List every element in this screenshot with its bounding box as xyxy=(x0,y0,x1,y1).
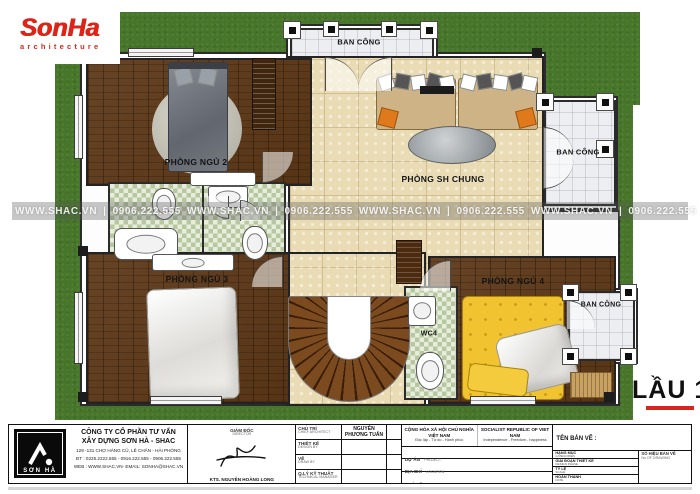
right-margin-panel xyxy=(633,105,693,420)
column-symbol xyxy=(620,348,637,365)
room-label-bedroom2: PHÒNG NGỦ 2 xyxy=(165,157,228,167)
wall-pier xyxy=(78,392,88,402)
staff-label-en: DESIGN BY xyxy=(298,446,339,450)
wc4-toilet-symbol xyxy=(416,352,444,390)
watermark-text: WWW.SHAC.VN|0906.222.555 xyxy=(12,206,184,217)
room-label-living: PHÒNG SH CHUNG xyxy=(401,174,484,184)
company-address: 129 -131 CHỢ HÀNG CŨ, LÊ CHÂN - HẢI PHÒN… xyxy=(71,447,186,454)
column-symbol xyxy=(323,21,339,37)
tv-cabinet-symbol xyxy=(420,86,454,94)
staff-row: Q.LÝ KỸ THUẬTTECHNICAL MANAGER xyxy=(296,470,401,483)
company-phone: ĐT : 0225.2222.555 - 0916.222.555 - 0906… xyxy=(71,455,186,462)
sonha-logo-subtitle: architecture xyxy=(20,42,120,51)
window-symbol xyxy=(128,48,194,57)
drawing-detail-row: HẠNG MỤCCATEGORIES xyxy=(553,451,638,459)
sonha-emblem-label: SƠN HÀ xyxy=(23,468,56,474)
drawing-sheet: BAN CÔNG PHÒNG NGỦ 2 PHÒNG SH CHUNG BAN … xyxy=(0,0,700,494)
room-label-wc4: WC4 xyxy=(421,331,437,338)
drawing-detail-row: HOÀN THÀNHDATE xyxy=(553,475,638,483)
company-web: WEB : WWW.SHAC.VN- EMAIL: SONHA@SHAC.VN xyxy=(71,463,186,470)
room-label-balcony-right: BAN CÔNG xyxy=(556,148,599,157)
director-label-en: DIRECTOR xyxy=(188,433,295,437)
staff-label-en: TECHNICAL MANAGER xyxy=(298,476,339,480)
wc4-sink-symbol xyxy=(408,296,436,326)
director-signature xyxy=(215,440,269,470)
republic-vn-line1: CỘNG HÒA XÃ HỘI CHỦ NGHĨA VIỆT NAM xyxy=(402,427,477,438)
watermark-text: WWW.SHAC.VN|0906.222.555 xyxy=(528,206,700,217)
wall-pier xyxy=(532,48,542,58)
floor-title-underline xyxy=(646,406,694,410)
project-label: CHỦ ĐẦU TƯ xyxy=(405,482,434,483)
sonha-emblem-icon xyxy=(25,442,55,468)
project-row: DỰ ÁN PROJECT xyxy=(402,447,553,459)
drawing-name-label: TÊN BẢN VẼ : xyxy=(556,436,596,442)
room-label-bedroom3: PHÒNG NGỦ 3 xyxy=(166,274,229,284)
republic-en-line2: Independence - Freedom - happiness xyxy=(478,438,553,443)
toilet-b-symbol xyxy=(242,226,268,260)
drawing-detail-row: TỶ LỆSCALE xyxy=(553,467,638,475)
window-symbol xyxy=(74,292,83,364)
company-name-line2: XÂY DỰNG SƠN HÀ - SHAC xyxy=(71,437,186,446)
title-block-drawing: TÊN BẢN VẼ : HẠNG MỤCCATEGORIES GIAI ĐOẠ… xyxy=(553,425,691,483)
floor-title: LẦU 1 xyxy=(632,376,700,405)
column-symbol xyxy=(381,21,397,37)
vanity-symbol xyxy=(152,254,234,271)
column-symbol xyxy=(620,284,637,301)
sonha-logo: SonHa xyxy=(20,16,120,41)
staff-row: CHỦ TRÌCHIEF ARCHITECT NGUYỄN PHƯƠNG TUẤ… xyxy=(296,425,401,440)
drawing-number-label-en: No OF DRAWING xyxy=(641,457,689,461)
drawing-detail-row: GIAI ĐOẠN THIẾT KẾDESIGN PHASE xyxy=(553,459,638,467)
staff-value xyxy=(342,440,387,454)
staff-label-en: CHIEF ARCHITECT xyxy=(298,431,339,435)
bed3-symbol xyxy=(146,286,240,401)
column-symbol xyxy=(283,21,301,39)
staff-value xyxy=(342,470,387,483)
staff-value: NGUYỄN PHƯƠNG TUẤN xyxy=(342,425,387,439)
staff-row: VẼDRAW BY xyxy=(296,455,401,470)
bed2-symbol xyxy=(168,62,228,172)
staff-value xyxy=(342,455,387,469)
republic-en-line1: SOCIALIST REPUBLIC OF VIET NAM xyxy=(478,427,553,438)
republic-vn-line2: Độc lập - Tự do - Hạnh phúc xyxy=(402,438,477,443)
window-symbol xyxy=(150,396,222,405)
watermark-text: WWW.SHAC.VN|0906.222.555 xyxy=(184,206,356,217)
company-name-line1: CÔNG TY CỔ PHẦN TƯ VẤN xyxy=(71,428,186,437)
wardrobe2-symbol xyxy=(252,58,276,130)
staff-label-en: DRAW BY xyxy=(298,461,339,465)
coffee-table-symbol xyxy=(408,126,496,164)
bench-symbol xyxy=(190,172,256,186)
room-label-bedroom4: PHÒNG NGỦ 4 xyxy=(482,276,545,286)
logo-panel: SonHa architecture xyxy=(12,12,120,64)
room-label-balcony-top: BAN CÔNG xyxy=(337,38,380,47)
staff-row: THIẾT KẾDESIGN BY xyxy=(296,440,401,455)
title-block-company: SƠN HÀ CÔNG TY CỔ PHẦN TƯ VẤN XÂY DỰNG S… xyxy=(9,425,188,483)
title-block-staff: CHỦ TRÌCHIEF ARCHITECT NGUYỄN PHƯƠNG TUẤ… xyxy=(296,425,402,483)
watermark-band: WWW.SHAC.VN|0906.222.555 WWW.SHAC.VN|090… xyxy=(12,202,688,220)
column-symbol xyxy=(562,348,579,365)
title-block-director: GIÁM ĐỐC DIRECTOR KTS. NGUYỄN HOÀNG LONG xyxy=(188,425,296,483)
room-label-balcony-bottom: BAN CÔNG xyxy=(581,302,622,309)
column-symbol xyxy=(536,93,554,111)
project-row: ĐỊA CHỈ LOCATION xyxy=(402,459,553,471)
window-symbol xyxy=(470,396,536,405)
watermark-text: WWW.SHAC.VN|0906.222.555 xyxy=(356,206,528,217)
architect-name: KTS. NGUYỄN HOÀNG LONG xyxy=(188,477,295,482)
column-symbol xyxy=(420,21,438,39)
column-symbol xyxy=(562,284,579,301)
window-symbol xyxy=(74,95,83,159)
title-block: SƠN HÀ CÔNG TY CỔ PHẦN TƯ VẤN XÂY DỰNG S… xyxy=(8,424,692,484)
sonha-emblem: SƠN HÀ xyxy=(14,429,66,478)
project-row: CHỦ ĐẦU TƯ INVESTOR xyxy=(402,472,553,483)
column-symbol xyxy=(596,93,614,111)
wall-pier xyxy=(604,392,614,402)
sofa-right-symbol xyxy=(458,78,538,130)
title-block-project: CỘNG HÒA XÃ HỘI CHỦ NGHĨA VIỆT NAM Độc l… xyxy=(402,425,554,483)
wall-pier xyxy=(78,246,88,256)
hall-cabinet-symbol xyxy=(396,240,422,284)
bottom-rule xyxy=(8,487,692,490)
